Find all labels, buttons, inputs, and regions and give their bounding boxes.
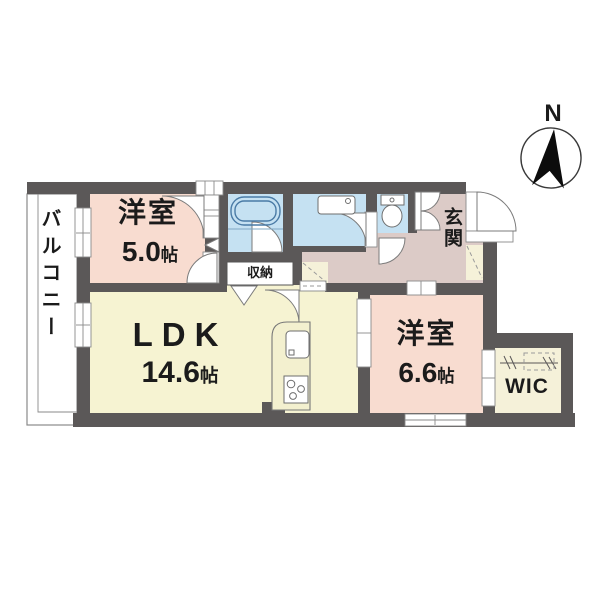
- entrance-label: 玄関: [442, 207, 461, 249]
- sliding-door-bedroom-large: [407, 281, 436, 295]
- storage-label: 収納: [227, 266, 293, 279]
- area-value: 6.6: [398, 357, 437, 388]
- wall-segment: [90, 283, 227, 292]
- area-value: 5.0: [122, 236, 161, 267]
- wall-segment: [325, 283, 370, 292]
- entrance-landing: [466, 231, 513, 242]
- bedroom-small-name: 洋室: [90, 199, 206, 227]
- wall-segment: [73, 413, 575, 427]
- balcony-label: バルコニー: [39, 208, 59, 343]
- floor-plan: N 洋室 5.0帖 LDK 14.6帖 洋室 6.6帖 バルコニー 玄関 収納 …: [0, 0, 600, 600]
- north-arrow-icon: [532, 127, 570, 188]
- wall-segment: [561, 348, 573, 422]
- bedroom-large-floor: [370, 295, 483, 413]
- area-value: 14.6: [142, 356, 200, 389]
- ldk-area: 14.6帖: [100, 358, 260, 388]
- burner: [298, 386, 305, 393]
- washbasin-faucet: [346, 199, 351, 204]
- floor-plan-drawing: [0, 0, 600, 600]
- burner: [290, 393, 297, 400]
- shoe-cabinet: [415, 192, 421, 230]
- ldk-name: LDK: [100, 318, 260, 351]
- area-unit: 帖: [200, 365, 219, 386]
- wall-segment: [293, 246, 366, 252]
- wall-segment: [283, 194, 293, 252]
- bedroom-small-area: 5.0帖: [90, 238, 210, 266]
- toilet-bowl: [382, 205, 402, 227]
- wic-label: WIC: [493, 376, 561, 397]
- bedroom-large-area: 6.6帖: [370, 359, 483, 387]
- window-top: [196, 181, 223, 195]
- entrance-door-leaf: [466, 192, 477, 231]
- burner: [287, 380, 295, 388]
- bedroom-large-name: 洋室: [370, 320, 483, 348]
- area-unit: 帖: [161, 245, 178, 265]
- compass-north-label: N: [533, 102, 573, 126]
- washroom-door-frame: [365, 212, 377, 247]
- wall-segment: [483, 238, 497, 348]
- wall-segment: [227, 252, 302, 262]
- wall-segment: [27, 182, 466, 194]
- wall-segment: [483, 333, 573, 348]
- compass: [518, 125, 584, 191]
- door-entrance: [477, 192, 516, 231]
- area-unit: 帖: [437, 366, 454, 386]
